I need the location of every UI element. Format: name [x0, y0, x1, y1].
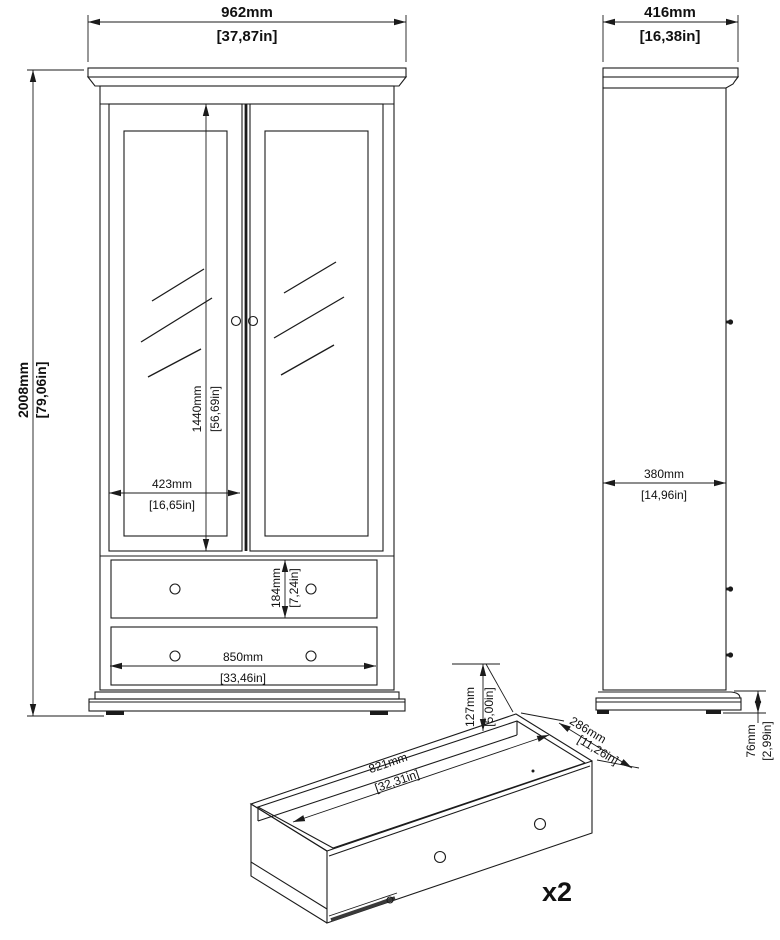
dim-front-height-mm: 2008mm	[15, 362, 31, 418]
side-plinth-curve	[731, 692, 740, 698]
front-plinth-step	[95, 692, 399, 699]
left-door-glass	[124, 131, 227, 536]
dim-drawer-height-mm: 127mm	[463, 687, 477, 727]
side-crown-top	[603, 68, 738, 77]
side-bottom-drawer-knob-icon	[726, 652, 733, 657]
dim-drawer-height-in: [5,00in]	[482, 687, 496, 726]
dim-drawer-front-height-mm: 184mm	[269, 568, 283, 608]
drawer-rail	[331, 898, 395, 920]
dim-side-depth-mm: 416mm	[644, 4, 696, 21]
drawer-rail-edge-top	[329, 893, 397, 916]
dim-door-width-in: [16,65in]	[149, 498, 195, 512]
bottom-drawer-knob-right-icon	[306, 651, 316, 661]
front-plinth-base	[89, 699, 405, 711]
dim-door-width-mm: 423mm	[152, 477, 192, 491]
drawer-front-panel-top-edge-line	[329, 766, 590, 856]
top-drawer-knob-right-icon	[306, 584, 316, 594]
dim-side-body-depth: 380mm [14,96in]	[603, 467, 726, 502]
dim-plinth-height-mm: 76mm	[744, 724, 758, 757]
drawer-left-side-face	[251, 804, 327, 923]
dim-drawer-front-width-mm: 850mm	[223, 650, 263, 664]
front-foot-right	[370, 711, 388, 715]
front-foot-left	[106, 711, 124, 715]
dim-door-height: 1440mm [56,69in]	[190, 104, 222, 551]
dim-front-width-in: [37,87in]	[217, 28, 278, 45]
dim-drawer-front-height-in: [7,24in]	[287, 568, 301, 607]
dim-door-height-in: [56,69in]	[208, 386, 222, 432]
drawer-left-side-bottom-line	[251, 862, 327, 909]
top-drawer-knob-left-icon	[170, 584, 180, 594]
front-view	[88, 68, 406, 715]
side-foot-front	[706, 710, 721, 714]
side-view	[596, 68, 741, 714]
dim-door-height-mm: 1440mm	[190, 386, 204, 433]
side-body	[603, 88, 726, 690]
right-door	[250, 104, 383, 551]
dim-drawer-front-height: 184mm [7,24in]	[269, 560, 301, 618]
side-foot-back	[597, 710, 609, 714]
bottom-drawer-knob-left-icon	[170, 651, 180, 661]
dim-drawer-height: 127mm [5,00in]	[452, 664, 513, 731]
dim-front-height: 2008mm [79,06in]	[15, 70, 104, 716]
technical-drawing-page: 962mm [37,87in] 2008mm [79,06in] 1440mm …	[0, 0, 780, 940]
dim-front-width-mm: 962mm	[221, 4, 273, 21]
left-door-knob-icon	[232, 317, 241, 326]
dim-side-depth: 416mm [16,38in]	[603, 4, 738, 62]
dim-front-width: 962mm [37,87in]	[88, 4, 406, 62]
drawer-quantity-label: x2	[542, 877, 572, 907]
side-crown-molding	[603, 77, 738, 88]
dim-front-height-in: [79,06in]	[33, 362, 49, 419]
dim-side-depth-in: [16,38in]	[640, 28, 701, 45]
side-plinth-base	[596, 698, 741, 710]
dim-side-body-depth-mm: 380mm	[644, 467, 684, 481]
dim-plinth-height-in: [2,99in]	[760, 721, 774, 760]
dim-drawer-front-width: 850mm [33,46in]	[110, 650, 376, 685]
front-crown-top	[88, 68, 406, 77]
dim-drawer-width: 821mm [32,31in]	[293, 735, 549, 822]
front-crown-molding	[88, 77, 406, 86]
drawer-floor-screw-dot	[532, 770, 535, 773]
dim-door-width: 423mm [16,65in]	[109, 477, 240, 512]
drawer-iso-knob-left-icon	[435, 852, 446, 863]
dim-side-body-depth-in: [14,96in]	[641, 488, 687, 502]
side-door-knob-icon	[726, 319, 733, 324]
drawer-iso-knob-right-icon	[535, 819, 546, 830]
dim-drawer-front-width-in: [33,46in]	[220, 671, 266, 685]
top-drawer-front	[111, 560, 377, 618]
side-top-drawer-knob-icon	[726, 586, 733, 591]
wardrobe-dimension-drawing: 962mm [37,87in] 2008mm [79,06in] 1440mm …	[0, 0, 780, 940]
